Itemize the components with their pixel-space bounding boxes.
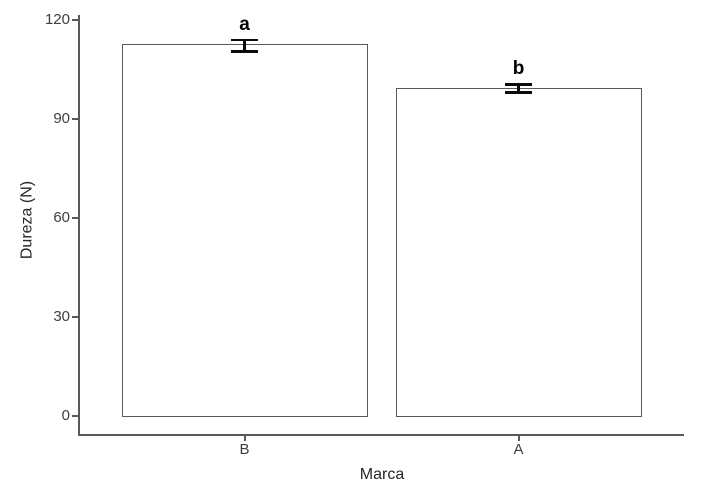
error-bar-cap-bottom <box>505 91 532 94</box>
y-tick-mark <box>72 415 78 417</box>
y-tick-label: 0 <box>26 407 70 425</box>
y-axis-line <box>78 15 80 436</box>
y-tick-label: 30 <box>26 308 70 326</box>
bar-b <box>122 44 368 417</box>
error-bar-cap-bottom <box>231 50 258 53</box>
y-tick-label: 120 <box>26 11 70 29</box>
x-tick-label: B <box>225 441 265 459</box>
bar-a <box>396 88 642 417</box>
y-tick-mark <box>72 118 78 120</box>
sig-letter-b: a <box>229 15 261 35</box>
y-tick-mark <box>72 19 78 21</box>
x-axis-title: Marca <box>80 465 684 484</box>
bar-chart-figure: Marca Dureza (N) 0306090120aBbA <box>0 0 705 497</box>
error-bar-cap-top <box>505 83 532 86</box>
x-axis-line <box>78 434 684 436</box>
y-tick-label: 60 <box>26 209 70 227</box>
y-tick-mark <box>72 316 78 318</box>
x-tick-label: A <box>499 441 539 459</box>
sig-letter-a: b <box>503 59 535 79</box>
error-bar-cap-top <box>231 39 258 42</box>
y-tick-mark <box>72 217 78 219</box>
y-tick-label: 90 <box>26 110 70 128</box>
